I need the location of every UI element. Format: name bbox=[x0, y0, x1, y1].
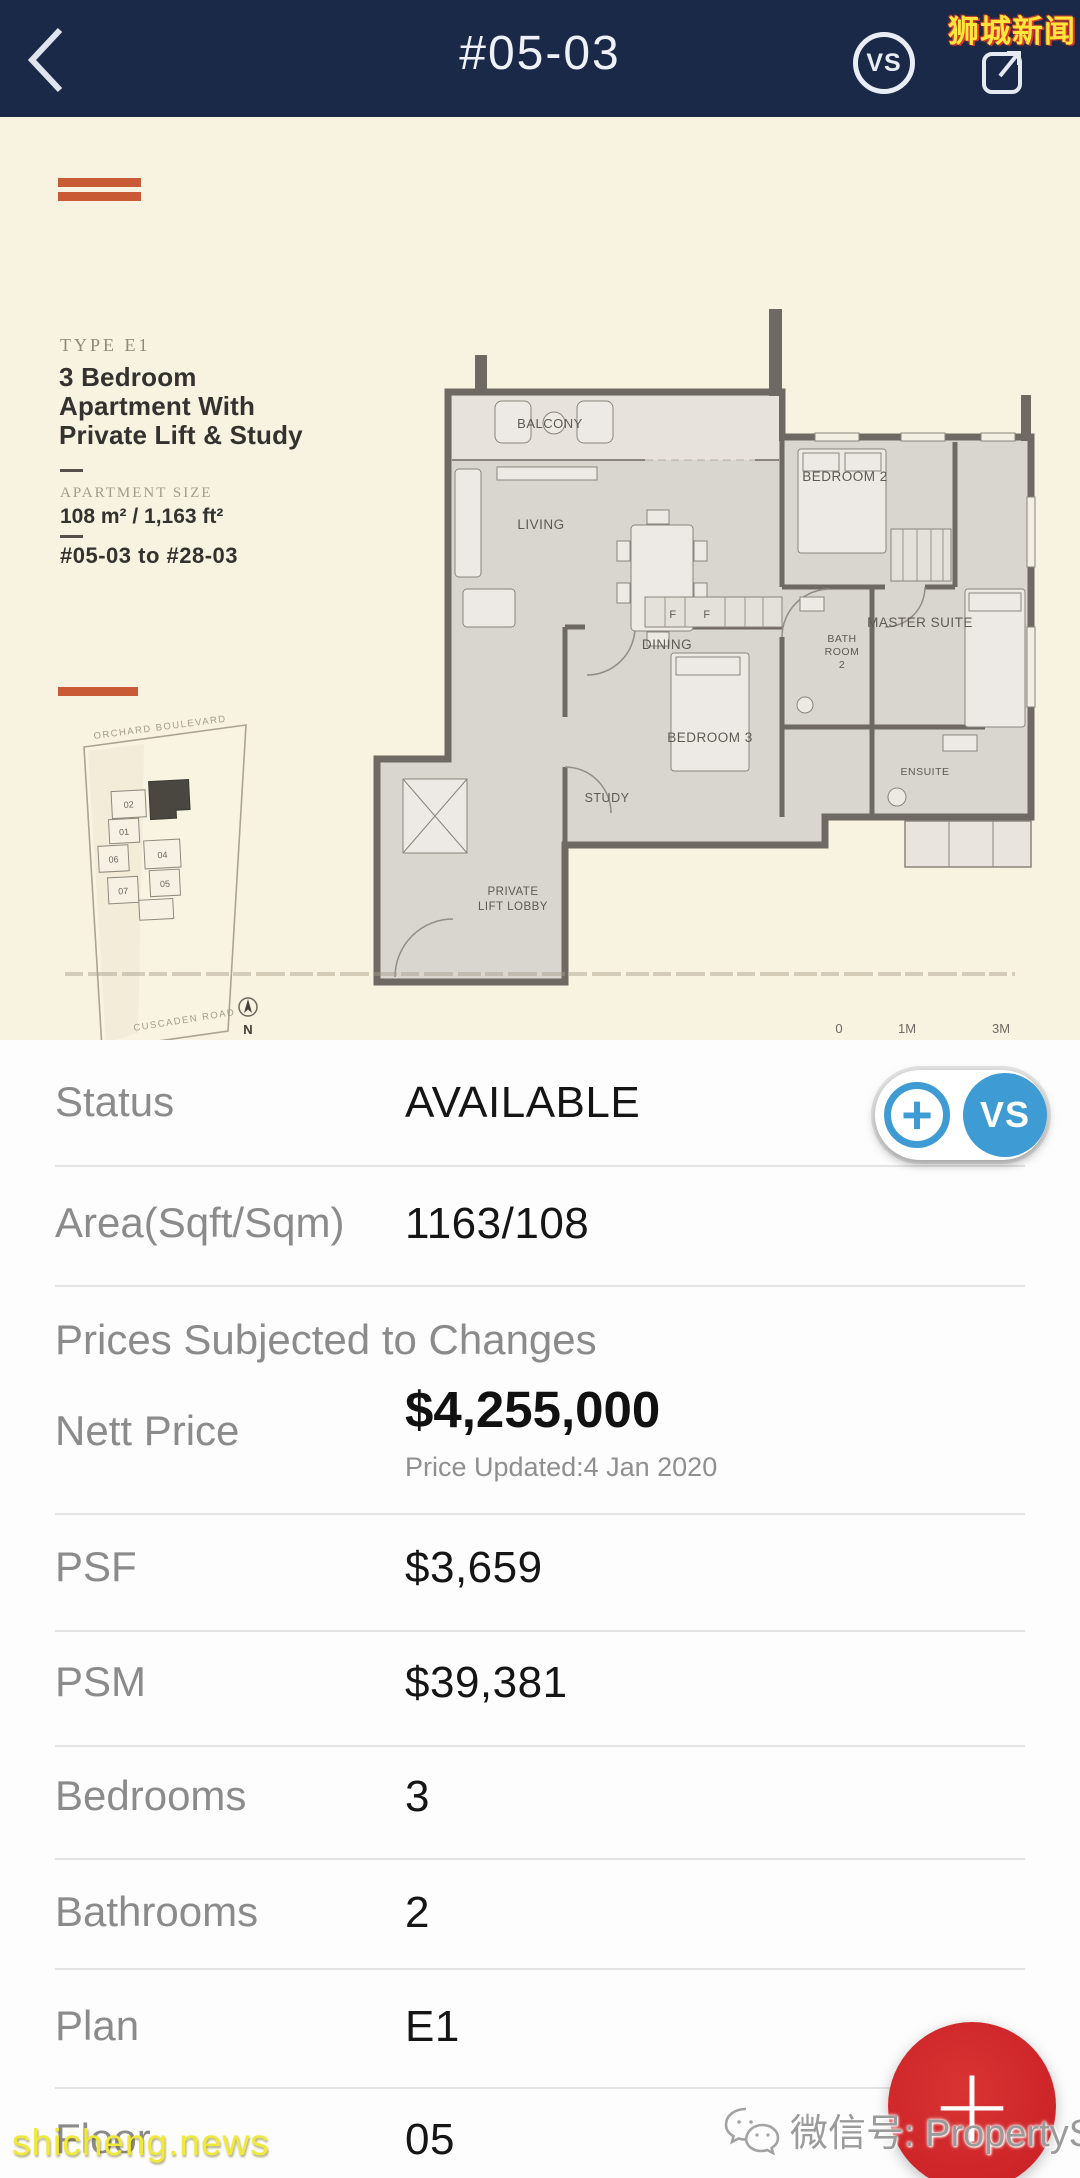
row-label: PSF bbox=[55, 1543, 405, 1593]
row-label: Bathrooms bbox=[55, 1888, 405, 1938]
cabinet-label-f2: F bbox=[703, 609, 710, 621]
shicheng-watermark: shicheng.news bbox=[12, 2122, 270, 2164]
row-value: 05 bbox=[405, 2115, 455, 2165]
unit-details-section: Status AVAILABLE + VS Area(Sqft/Sqm) 116… bbox=[0, 1040, 1080, 2178]
row-value: $39,381 bbox=[405, 1658, 568, 1708]
wechat-label: 微信号: PropertySGSG bbox=[790, 2102, 1080, 2157]
room-label-bedroom3: BEDROOM 3 bbox=[667, 730, 753, 745]
row-label: Status bbox=[55, 1078, 405, 1128]
plus-icon: + bbox=[884, 1082, 950, 1148]
divider bbox=[55, 1630, 1025, 1632]
divider bbox=[55, 2087, 1025, 2089]
row-value: 1163/108 bbox=[405, 1199, 589, 1249]
room-label-bath-1: BATH bbox=[827, 633, 856, 645]
room-label-bath-3: 2 bbox=[839, 659, 845, 671]
apartment-size-label: APARTMENT SIZE bbox=[60, 485, 213, 502]
plan-type-label: TYPE E1 bbox=[60, 335, 151, 356]
scale-label-3m: 3M bbox=[992, 1021, 1010, 1036]
page-title: #05-03 bbox=[0, 26, 1080, 81]
detail-row-plan: Plan E1 bbox=[55, 2002, 1025, 2052]
room-label-bath-2: ROOM bbox=[825, 646, 860, 658]
unit-range: #05-03 to #28-03 bbox=[60, 543, 238, 569]
room-label-bedroom2: BEDROOM 2 bbox=[802, 469, 888, 484]
row-label: Nett Price bbox=[55, 1407, 405, 1455]
vs-badge: VS bbox=[963, 1073, 1047, 1157]
row-label: Area(Sqft/Sqm) bbox=[55, 1199, 405, 1249]
floorplan-image: TYPE E1 3 Bedroom Apartment With Private… bbox=[0, 117, 1080, 1040]
divider bbox=[60, 535, 83, 538]
apartment-size-value: 108 m² / 1,163 ft² bbox=[60, 505, 223, 529]
news-site-watermark: 狮城新闻 bbox=[948, 6, 1076, 51]
divider bbox=[55, 1285, 1025, 1287]
plan-title-line1: 3 Bedroom bbox=[59, 363, 303, 392]
share-button[interactable] bbox=[980, 44, 1026, 96]
divider bbox=[55, 1165, 1025, 1167]
compare-vs-icon[interactable]: VS bbox=[853, 32, 915, 94]
price-updated-note: Price Updated:4 Jan 2020 bbox=[405, 1452, 717, 1483]
divider bbox=[55, 1745, 1025, 1747]
detail-row-area: Area(Sqft/Sqm) 1163/108 bbox=[55, 1199, 1025, 1249]
wechat-icon bbox=[722, 2105, 780, 2155]
scale-label-1m: 1M bbox=[898, 1021, 916, 1036]
row-value: AVAILABLE bbox=[405, 1078, 640, 1128]
divider bbox=[55, 1968, 1025, 1970]
row-label: PSM bbox=[55, 1658, 405, 1708]
row-value: E1 bbox=[405, 2002, 460, 2052]
floor-plan-drawing: BALCONY LIVING DINING BEDROOM 2 MASTER S… bbox=[345, 297, 1045, 1077]
divider bbox=[60, 469, 83, 472]
brand-logo-bar bbox=[58, 178, 141, 187]
room-label-balcony: BALCONY bbox=[517, 416, 583, 431]
brand-logo-bar bbox=[58, 192, 141, 201]
price-notice: Prices Subjected to Changes bbox=[55, 1316, 597, 1364]
scale-label-0: 0 bbox=[835, 1021, 842, 1036]
row-value: 2 bbox=[405, 1888, 430, 1938]
row-label: Bedrooms bbox=[55, 1772, 405, 1822]
add-to-compare-button[interactable]: + VS bbox=[875, 1070, 1047, 1160]
row-value: 3 bbox=[405, 1772, 430, 1822]
nett-price-value: $4,255,000 bbox=[405, 1380, 660, 1439]
cabinet-label-f1: F bbox=[669, 609, 676, 621]
divider bbox=[55, 1513, 1025, 1515]
site-unit-02: 02 bbox=[123, 799, 134, 810]
app-header: #05-03 VS bbox=[0, 0, 1080, 117]
detail-row-bathrooms: Bathrooms 2 bbox=[55, 1888, 1025, 1938]
detail-row-psm: PSM $39,381 bbox=[55, 1658, 1025, 1708]
room-label-ensuite: ENSUITE bbox=[900, 766, 949, 778]
detail-row-psf: PSF $3,659 bbox=[55, 1543, 1025, 1593]
site-unit-04: 04 bbox=[157, 850, 168, 861]
row-value: $3,659 bbox=[405, 1543, 543, 1593]
room-label-study: STUDY bbox=[585, 791, 630, 805]
property-unit-detail-screen: #05-03 VS 狮城新闻 TYPE E1 3 Bedroom Apartme… bbox=[0, 0, 1080, 2178]
vs-label: VS bbox=[866, 49, 901, 78]
wechat-contact-badge: 微信号: PropertySGSG bbox=[722, 2102, 1080, 2157]
room-label-lift-2: LIFT LOBBY bbox=[478, 901, 548, 913]
compass-north-label: N bbox=[243, 1022, 252, 1037]
site-unit-06: 06 bbox=[108, 854, 119, 865]
site-unit-05: 05 bbox=[160, 879, 171, 890]
room-label-master-suite: MASTER SUITE bbox=[867, 615, 973, 630]
site-map: ORCHARD BOULEVARD CUSCADEN ROAD 02 01 06… bbox=[52, 677, 272, 1072]
divider bbox=[55, 1858, 1025, 1860]
plan-title-line3: Private Lift & Study bbox=[59, 421, 303, 450]
row-label: Plan bbox=[55, 2002, 405, 2052]
site-unit-01: 01 bbox=[119, 827, 130, 838]
disclaimer-text-line bbox=[65, 972, 1015, 976]
plan-title-line2: Apartment With bbox=[59, 392, 303, 421]
open-external-icon bbox=[980, 44, 1026, 96]
site-unit-07: 07 bbox=[118, 886, 129, 897]
room-label-dining: DINING bbox=[642, 637, 692, 652]
room-label-living: LIVING bbox=[517, 517, 564, 532]
detail-row-bedrooms: Bedrooms 3 bbox=[55, 1772, 1025, 1822]
plan-title: 3 Bedroom Apartment With Private Lift & … bbox=[59, 363, 303, 450]
room-label-lift-1: PRIVATE bbox=[488, 886, 539, 898]
